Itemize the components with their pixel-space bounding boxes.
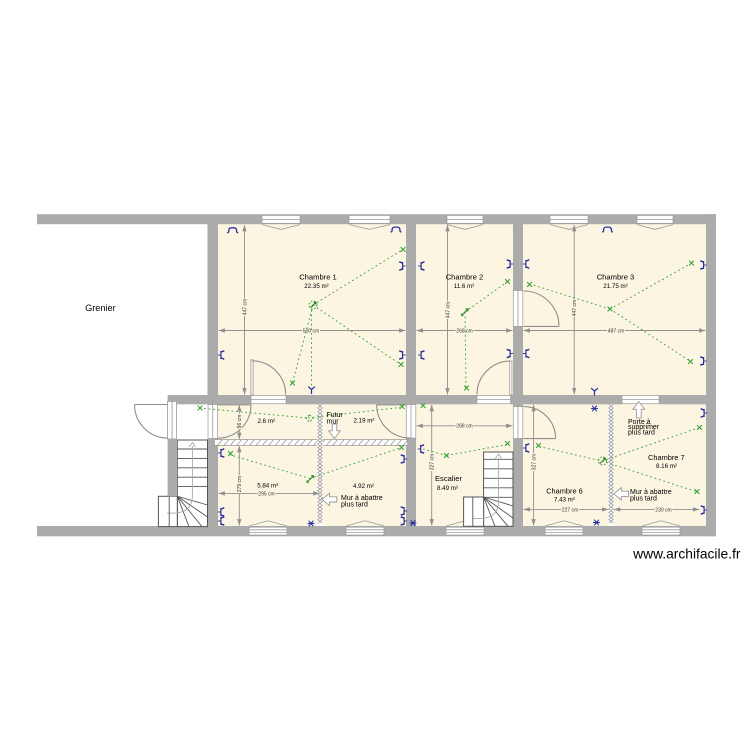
svg-text:268 cm: 268 cm [456, 424, 472, 430]
svg-text:21.75 m²: 21.75 m² [603, 283, 627, 290]
svg-text:2.6 m²: 2.6 m² [258, 418, 276, 425]
svg-text:7.43 m²: 7.43 m² [554, 497, 575, 504]
svg-text:96 cm: 96 cm [237, 415, 243, 429]
svg-text:Grenier: Grenier [85, 303, 116, 313]
svg-text:8.49 m²: 8.49 m² [437, 485, 458, 492]
svg-text:Chambre 6: Chambre 6 [546, 487, 583, 496]
svg-text:Chambre 2: Chambre 2 [446, 273, 484, 282]
svg-text:327 cm: 327 cm [532, 454, 538, 470]
svg-text:487 cm: 487 cm [608, 328, 624, 334]
svg-text:327 cm: 327 cm [430, 454, 436, 470]
svg-text:279 cm: 279 cm [237, 476, 243, 492]
svg-text:447 cm: 447 cm [242, 299, 248, 315]
svg-text:447 cm: 447 cm [572, 300, 578, 316]
svg-text:268 cm: 268 cm [456, 328, 472, 334]
svg-text:8.16 m²: 8.16 m² [656, 463, 677, 470]
svg-text:500 cm: 500 cm [303, 328, 319, 334]
svg-text:4.92 m²: 4.92 m² [353, 483, 374, 490]
svg-text:2.19 m²: 2.19 m² [354, 418, 375, 425]
svg-text:22.35 m²: 22.35 m² [304, 283, 328, 290]
svg-text:230 cm: 230 cm [655, 507, 671, 513]
svg-text:Chambre 7: Chambre 7 [648, 453, 685, 462]
svg-text:www.archifacile.fr: www.archifacile.fr [632, 547, 741, 562]
svg-text:5.84 m²: 5.84 m² [257, 483, 278, 490]
svg-text:Chambre 3: Chambre 3 [597, 273, 635, 282]
svg-text:11.6 m²: 11.6 m² [454, 283, 475, 290]
svg-text:227 cm: 227 cm [562, 507, 578, 513]
svg-text:Escalier: Escalier [435, 474, 462, 483]
svg-text:447 cm: 447 cm [445, 302, 451, 318]
svg-text:Chambre 1: Chambre 1 [299, 273, 337, 282]
svg-text:295 cm: 295 cm [258, 491, 274, 497]
